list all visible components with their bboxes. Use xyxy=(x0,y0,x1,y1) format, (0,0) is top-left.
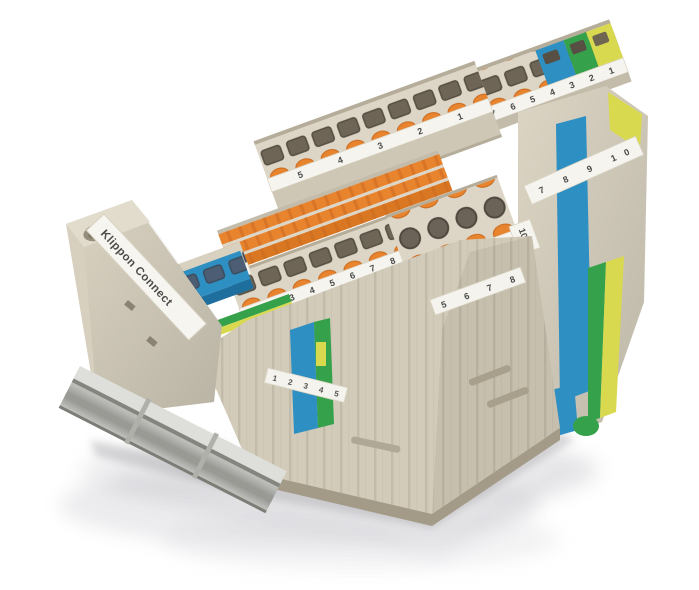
rail-foot-green xyxy=(573,416,599,436)
terminal-block-assembly-illustration: 10 9 8 7 6 5 4 3 2 1 5 4 3 2 1 7 8 9 10 xyxy=(0,0,699,590)
front-yellow-notch xyxy=(316,342,326,366)
product-photo: 10 9 8 7 6 5 4 3 2 1 5 4 3 2 1 7 8 9 10 xyxy=(0,0,699,590)
